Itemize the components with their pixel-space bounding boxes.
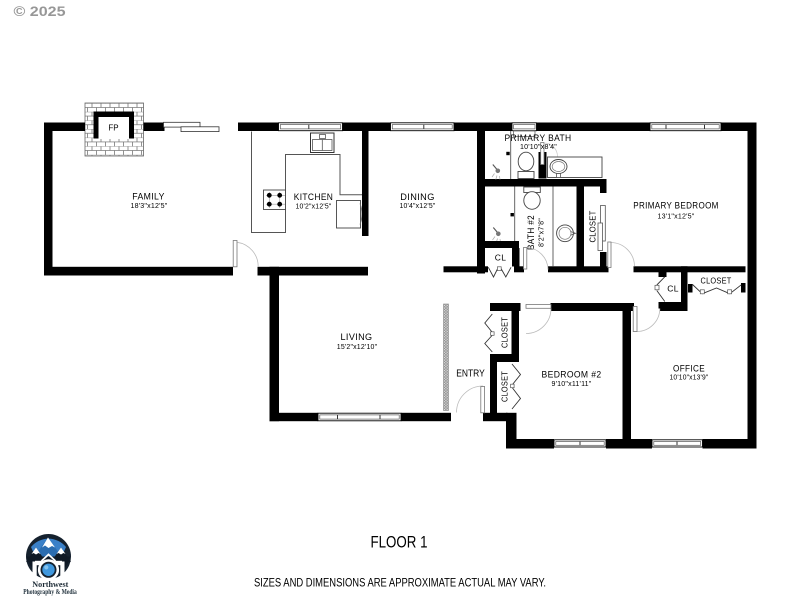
svg-text:15'2"x12'10": 15'2"x12'10" (337, 342, 378, 351)
svg-text:10'10"x13'9": 10'10"x13'9" (670, 373, 709, 382)
svg-text:ENTRY: ENTRY (456, 368, 485, 380)
svg-text:10'2"x12'5": 10'2"x12'5" (296, 202, 332, 211)
svg-text:FP: FP (108, 124, 118, 133)
svg-text:CL: CL (495, 253, 506, 263)
svg-text:9'10"x11'11": 9'10"x11'11" (552, 379, 592, 388)
svg-text:© 2025: © 2025 (14, 4, 67, 19)
svg-text:10'4"x12'5": 10'4"x12'5" (400, 201, 436, 210)
svg-text:CLOSET: CLOSET (499, 371, 509, 402)
svg-text:CLOSET: CLOSET (499, 317, 509, 348)
svg-text:18'3"x12'5": 18'3"x12'5" (131, 201, 168, 210)
svg-text:FLOOR 1: FLOOR 1 (371, 534, 428, 552)
svg-text:CLOSET: CLOSET (701, 276, 732, 286)
svg-text:PRIMARY BEDROOM: PRIMARY BEDROOM (633, 201, 719, 212)
svg-text:10'10"x8'4": 10'10"x8'4" (520, 142, 557, 151)
svg-text:13'1"x12'5": 13'1"x12'5" (658, 212, 695, 221)
svg-text:CLOSET: CLOSET (588, 211, 598, 243)
svg-text:SIZES AND DIMENSIONS ARE APPRO: SIZES AND DIMENSIONS ARE APPROXIMATE ACT… (254, 576, 546, 590)
svg-text:Photography & Media: Photography & Media (23, 588, 77, 596)
svg-text:8'2"x7'8": 8'2"x7'8" (537, 218, 546, 247)
svg-text:BATH #2: BATH #2 (526, 215, 537, 250)
svg-text:CL: CL (667, 284, 678, 294)
